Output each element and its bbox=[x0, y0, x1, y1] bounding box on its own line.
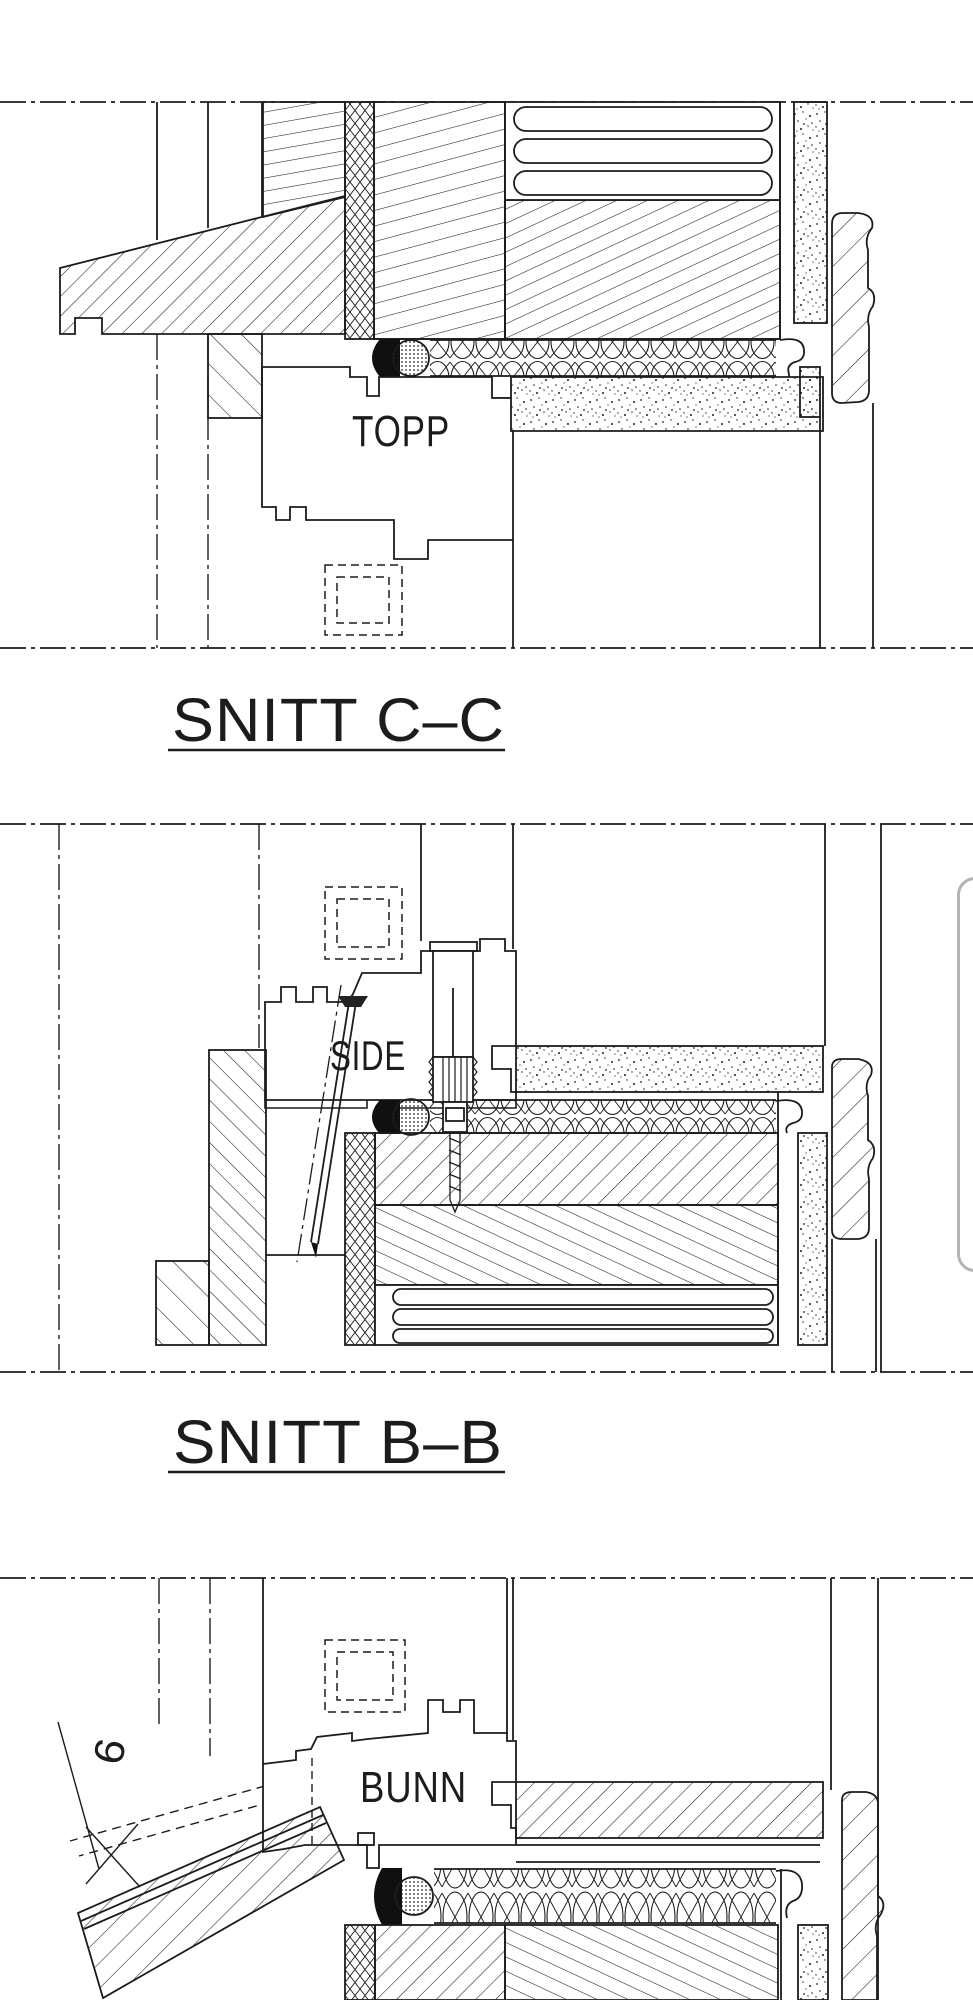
part-label-bunn: BUNN bbox=[360, 1763, 467, 1812]
section-snitt-cc: TOPP bbox=[0, 102, 973, 648]
frame-profile-topp bbox=[262, 367, 513, 559]
tilted-sash bbox=[78, 1807, 344, 1998]
drawing-page: TOPP SNITT C–C bbox=[0, 0, 973, 2000]
part-label-topp: TOPP bbox=[352, 407, 450, 456]
section-snitt-aa: 6 BUNN bbox=[0, 1578, 973, 2000]
section-snitt-bb: SIDE bbox=[0, 824, 973, 1372]
cad-sheet: TOPP SNITT C–C bbox=[0, 0, 973, 2000]
section-title-bb: SNITT B–B bbox=[173, 1408, 503, 1476]
part-label-side: SIDE bbox=[330, 1032, 406, 1079]
dimension-annotation: 6 bbox=[84, 1733, 135, 1768]
scrollbar-thumb[interactable] bbox=[957, 877, 973, 1272]
section-title-cc: SNITT C–C bbox=[172, 686, 505, 754]
